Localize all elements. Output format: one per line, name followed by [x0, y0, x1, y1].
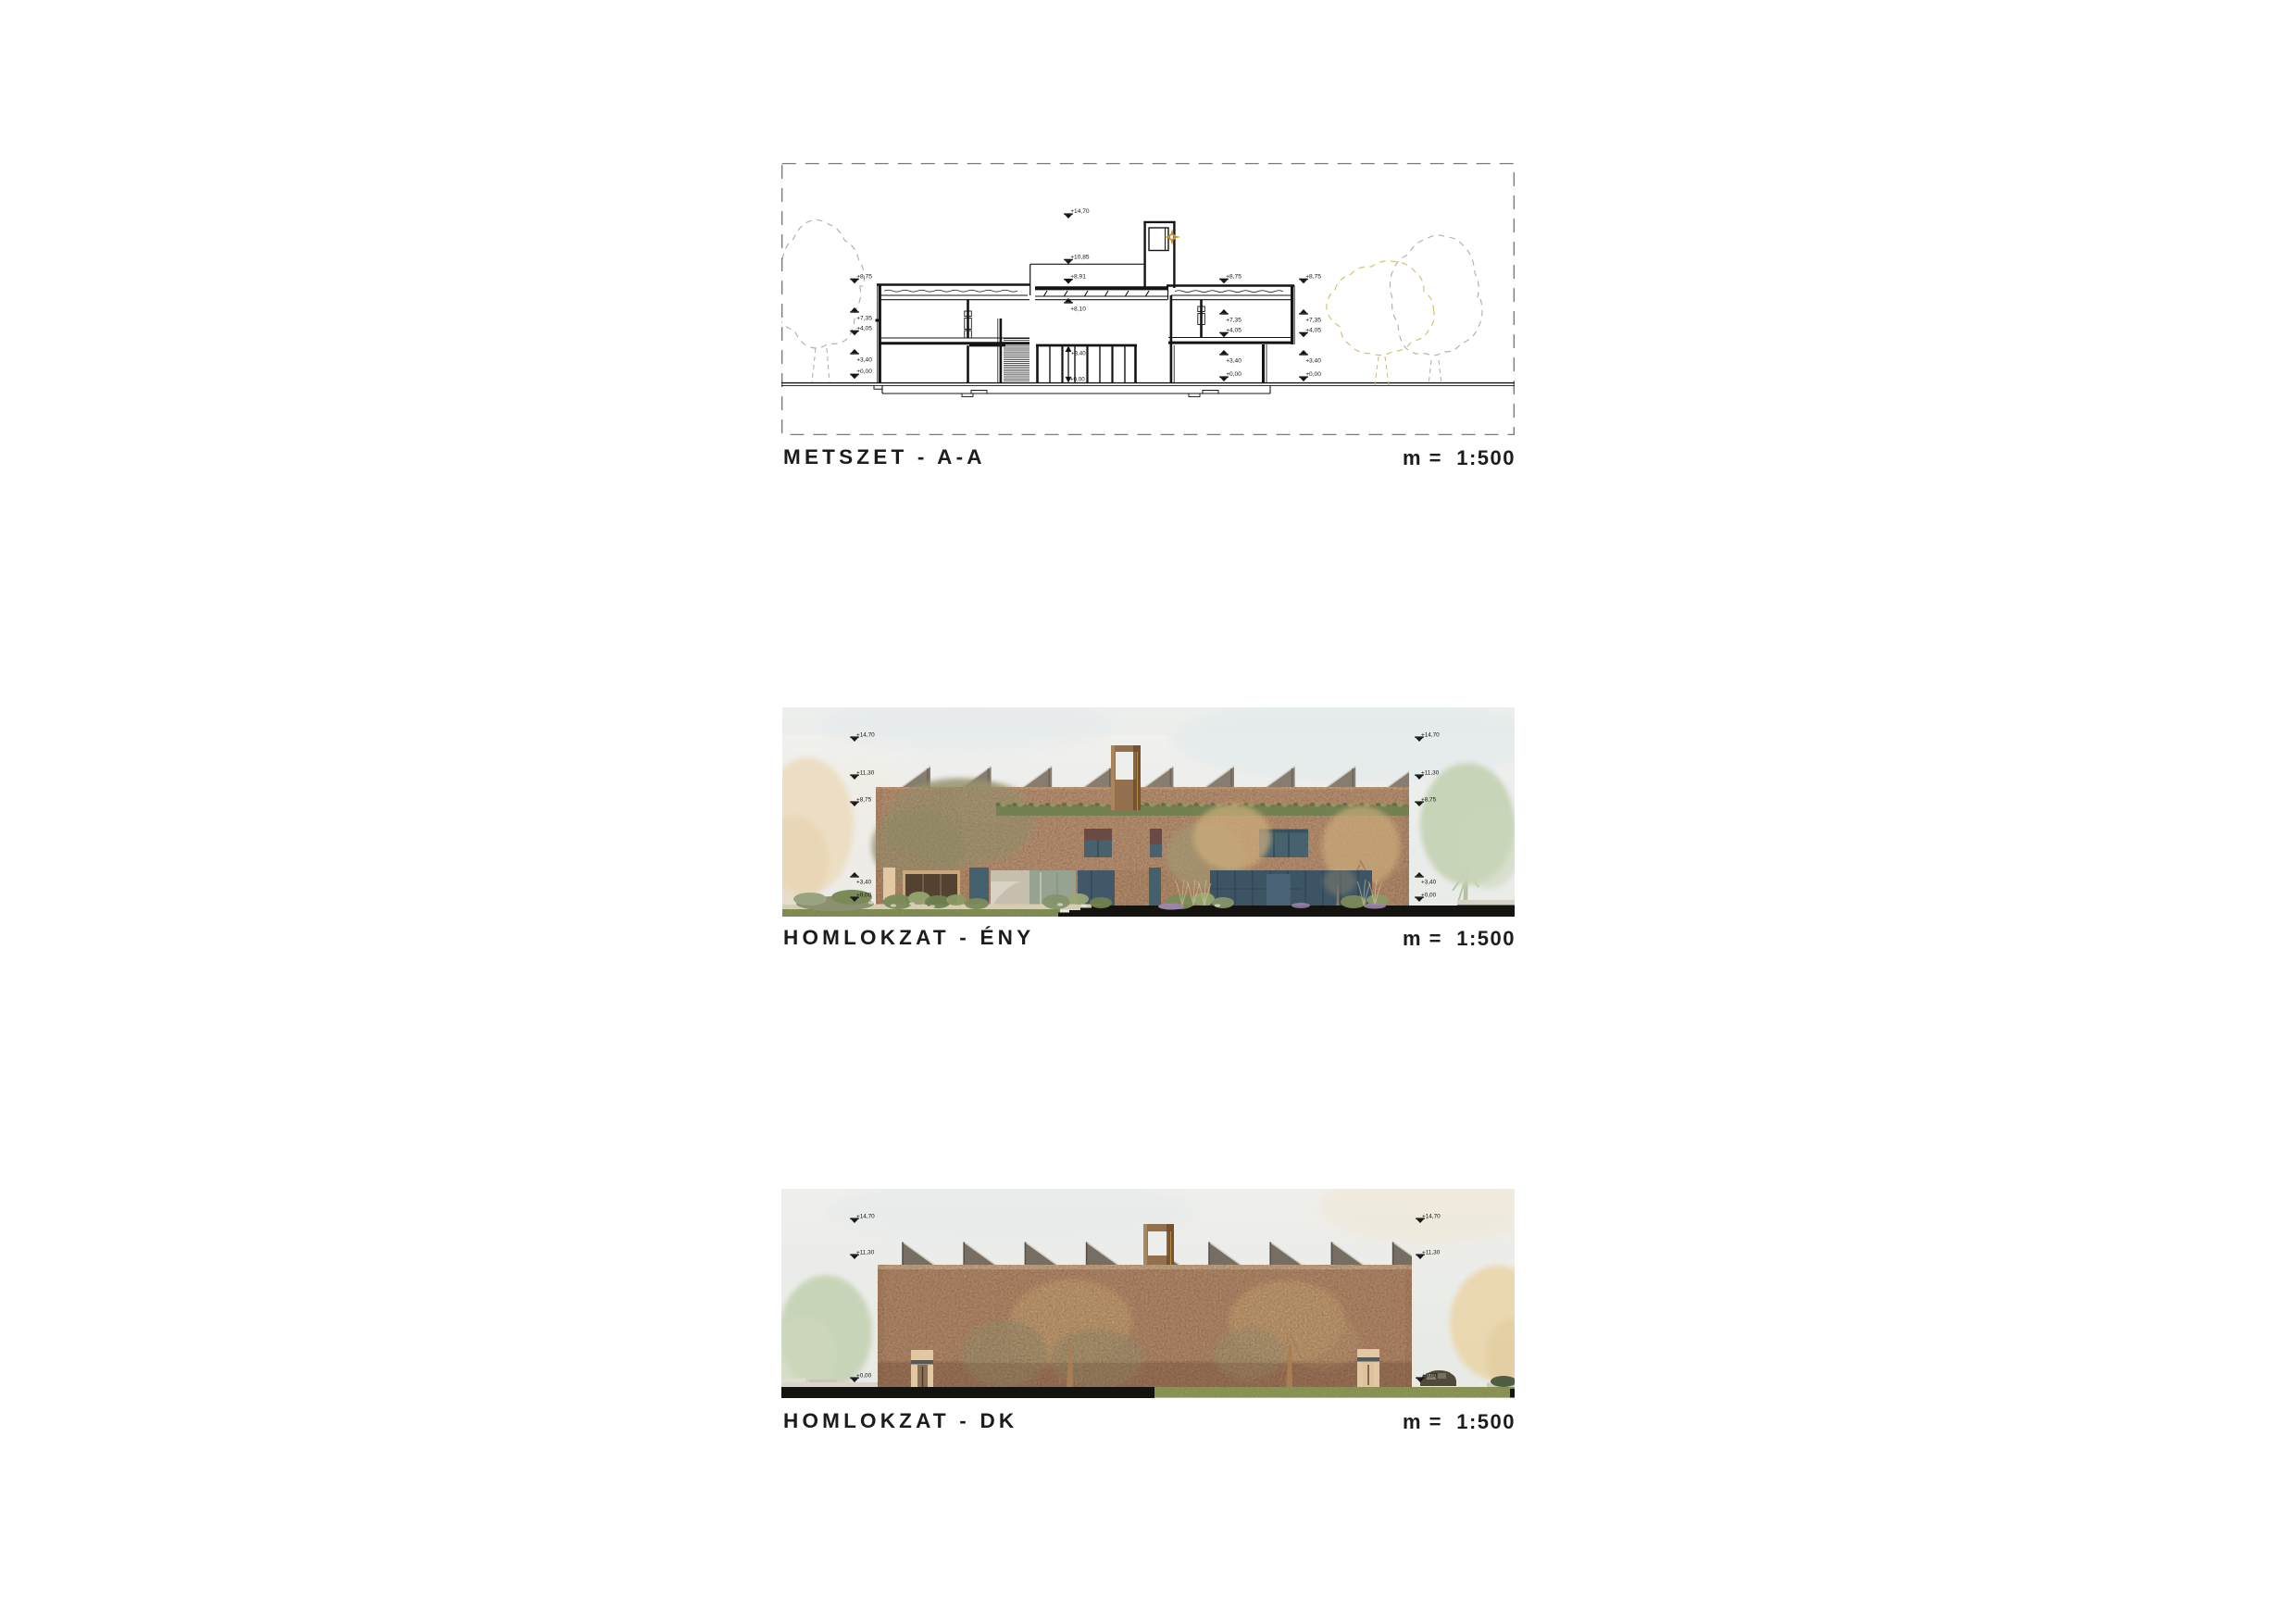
svg-text:+7,35: +7,35 — [1305, 318, 1321, 324]
svg-text:+3,40: +3,40 — [1421, 880, 1437, 886]
svg-text:+0,00: +0,00 — [1422, 1373, 1438, 1380]
svg-text:+8,75: +8,75 — [1305, 273, 1321, 280]
svg-text:+14,70: +14,70 — [856, 1214, 875, 1220]
svg-text:+14,70: +14,70 — [1421, 732, 1440, 739]
svg-text:+3,40: +3,40 — [1305, 358, 1321, 365]
svg-text:+14,70: +14,70 — [1070, 208, 1090, 215]
svg-text:+0,00: +0,00 — [1070, 377, 1085, 383]
svg-text:+0,00: +0,00 — [856, 369, 872, 375]
svg-text:+0,00: +0,00 — [1305, 371, 1321, 378]
svg-text:+7,35: +7,35 — [1226, 318, 1242, 324]
svg-text:+8,75: +8,75 — [1226, 273, 1242, 280]
svg-text:+3,40: +3,40 — [856, 880, 872, 886]
svg-text:+4,05: +4,05 — [1226, 327, 1242, 333]
svg-text:+14,70: +14,70 — [856, 732, 875, 739]
svg-text:+14,70: +14,70 — [1422, 1214, 1441, 1220]
svg-text:+0,00: +0,00 — [856, 893, 872, 899]
svg-text:+11,30: +11,30 — [856, 1250, 875, 1256]
svg-text:+11,30: +11,30 — [856, 770, 875, 777]
svg-text:+8,75: +8,75 — [1421, 797, 1437, 804]
svg-text:+3,40: +3,40 — [1226, 358, 1242, 365]
svg-text:+11,30: +11,30 — [1421, 770, 1440, 777]
svg-text:+8,75: +8,75 — [856, 797, 872, 804]
svg-text:+0,00: +0,00 — [1421, 893, 1437, 899]
svg-text:+0,00: +0,00 — [856, 1373, 872, 1380]
svg-text:+0,00: +0,00 — [1226, 371, 1242, 378]
svg-text:+3,40: +3,40 — [1071, 351, 1086, 357]
svg-text:+10,85: +10,85 — [1070, 254, 1090, 260]
svg-text:+7,35: +7,35 — [856, 316, 872, 322]
svg-text:+8,91: +8,91 — [1070, 274, 1086, 281]
svg-text:+4,05: +4,05 — [856, 325, 872, 331]
svg-text:+8,75: +8,75 — [856, 273, 872, 280]
svg-text:+3,40: +3,40 — [856, 357, 872, 364]
svg-text:+11,30: +11,30 — [1422, 1250, 1441, 1256]
svg-text:+4,05: +4,05 — [1305, 327, 1321, 333]
svg-text:+8,10: +8,10 — [1070, 306, 1086, 313]
